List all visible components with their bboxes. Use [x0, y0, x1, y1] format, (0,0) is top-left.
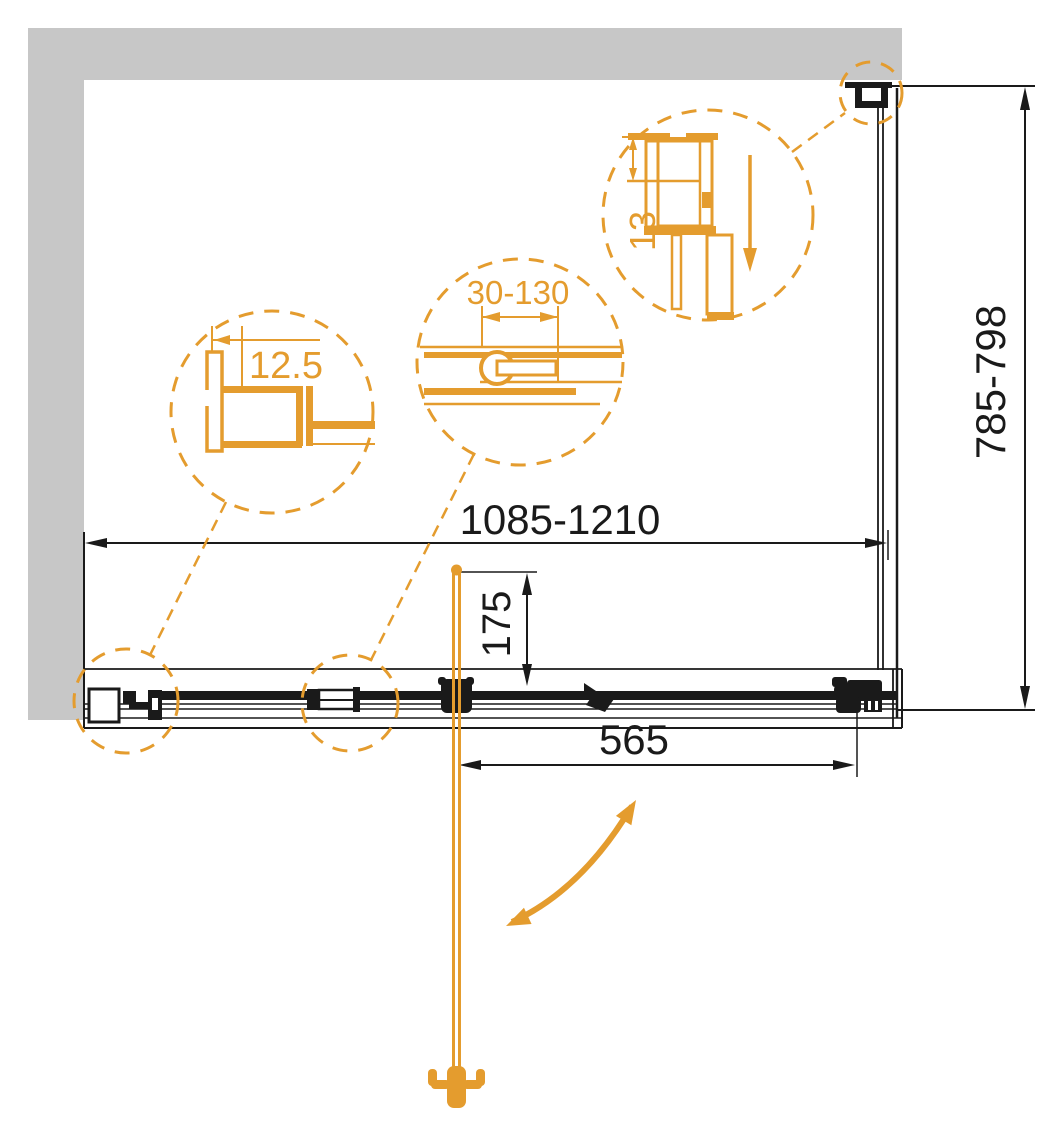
- detail-label-adjustment: 30-130: [438, 276, 598, 309]
- detail-label-corner: 13: [625, 171, 661, 291]
- detail-adjustment-profile: [420, 306, 622, 404]
- swing-arrow-icon: [502, 795, 644, 934]
- dim-label-handle-to-corner: 565: [554, 719, 714, 761]
- leader-corner: [792, 113, 845, 152]
- drawing: [0, 0, 1063, 1135]
- detail-circle-wall-profile: [171, 311, 373, 513]
- glass-clamp-bracket-mid: [307, 687, 360, 712]
- door-handle-knob: [438, 677, 474, 713]
- detail-label-wall-profile: 12.5: [226, 347, 346, 385]
- slide-arrow-icon: [743, 155, 757, 272]
- dimension-side-panel: [1020, 87, 1030, 709]
- wall-profile-fixture-left: [89, 689, 162, 722]
- dim-label-door-width: 1085-1210: [440, 499, 680, 541]
- leader-left: [150, 502, 226, 655]
- wall-corner-bracket: [845, 82, 892, 108]
- towel-hook-icon: [428, 1066, 485, 1108]
- dim-label-side-panel: 785-798: [970, 262, 1012, 502]
- dim-label-handle-offset: 175: [477, 554, 517, 694]
- installation-diagram: 1085-1210 785-798 565 175 12.5 30-130 13: [0, 0, 1063, 1135]
